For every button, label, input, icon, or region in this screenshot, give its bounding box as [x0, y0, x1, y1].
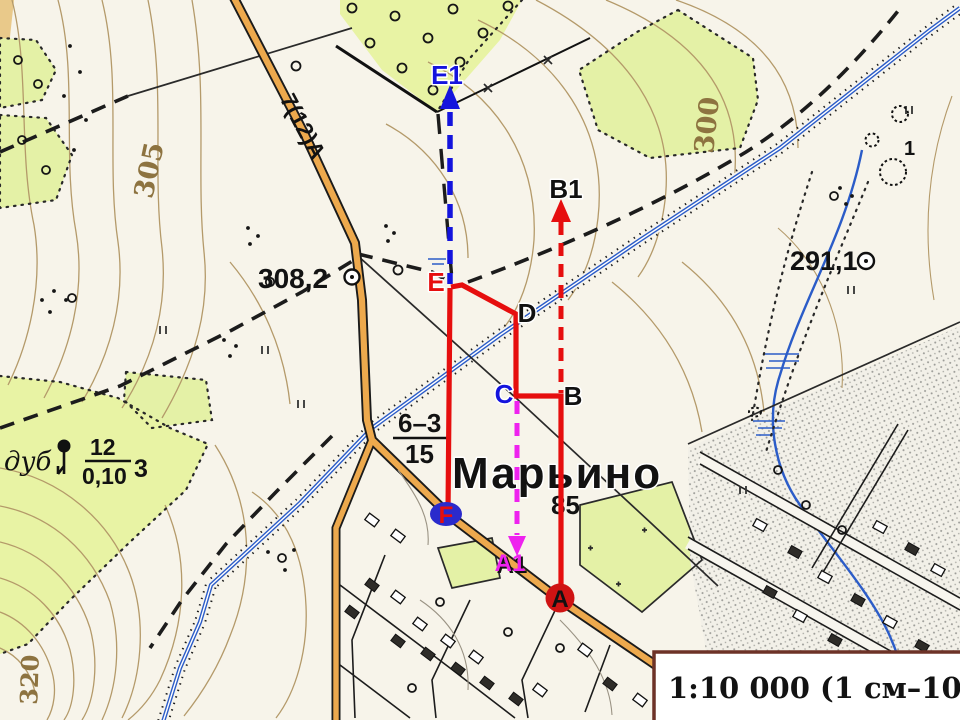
pit-depth-label: 1 [904, 138, 915, 160]
spot-height-main-icon [345, 270, 360, 285]
forest-height-text: 12 [90, 434, 116, 460]
route-point-b1-label: B1 [549, 174, 582, 204]
spot-height-east-icon [858, 253, 874, 269]
contour-label-300: 300 [689, 95, 726, 154]
block-number-label: 85 [551, 490, 580, 520]
scale-bar-box: 1:10 000 (1 см–100 м) [654, 652, 960, 720]
route-point-e-label: E [427, 267, 444, 297]
bridge-top-text: 6–3 [398, 408, 441, 438]
route-point-e1-label: E1 [431, 60, 463, 90]
spot-height-main-label: 308,2 [258, 263, 328, 294]
topographic-map-canvas: Марьино 85 308,2 291,1 305 300 320 7(12)… [0, 0, 960, 720]
route-point-d-label: D [518, 298, 537, 328]
bridge-bottom-text: 15 [405, 439, 434, 469]
contour-label-320: 320 [14, 654, 45, 705]
spot-height-east-label: 291,1 [790, 246, 858, 276]
route-point-a1-label: A1 [495, 550, 526, 577]
forest-diameter-text: 0,10 [82, 463, 127, 489]
route-point-c-label: C [495, 379, 514, 409]
scale-bar-text: 1:10 000 (1 см–100 м) [668, 671, 960, 705]
route-point-b-label: B [564, 381, 583, 411]
forest-spacing-text: 3 [134, 455, 148, 483]
route-point-a-label: A [551, 586, 568, 613]
route-point-f-label: F [439, 502, 454, 529]
forest-species-text: дуб [4, 447, 52, 477]
